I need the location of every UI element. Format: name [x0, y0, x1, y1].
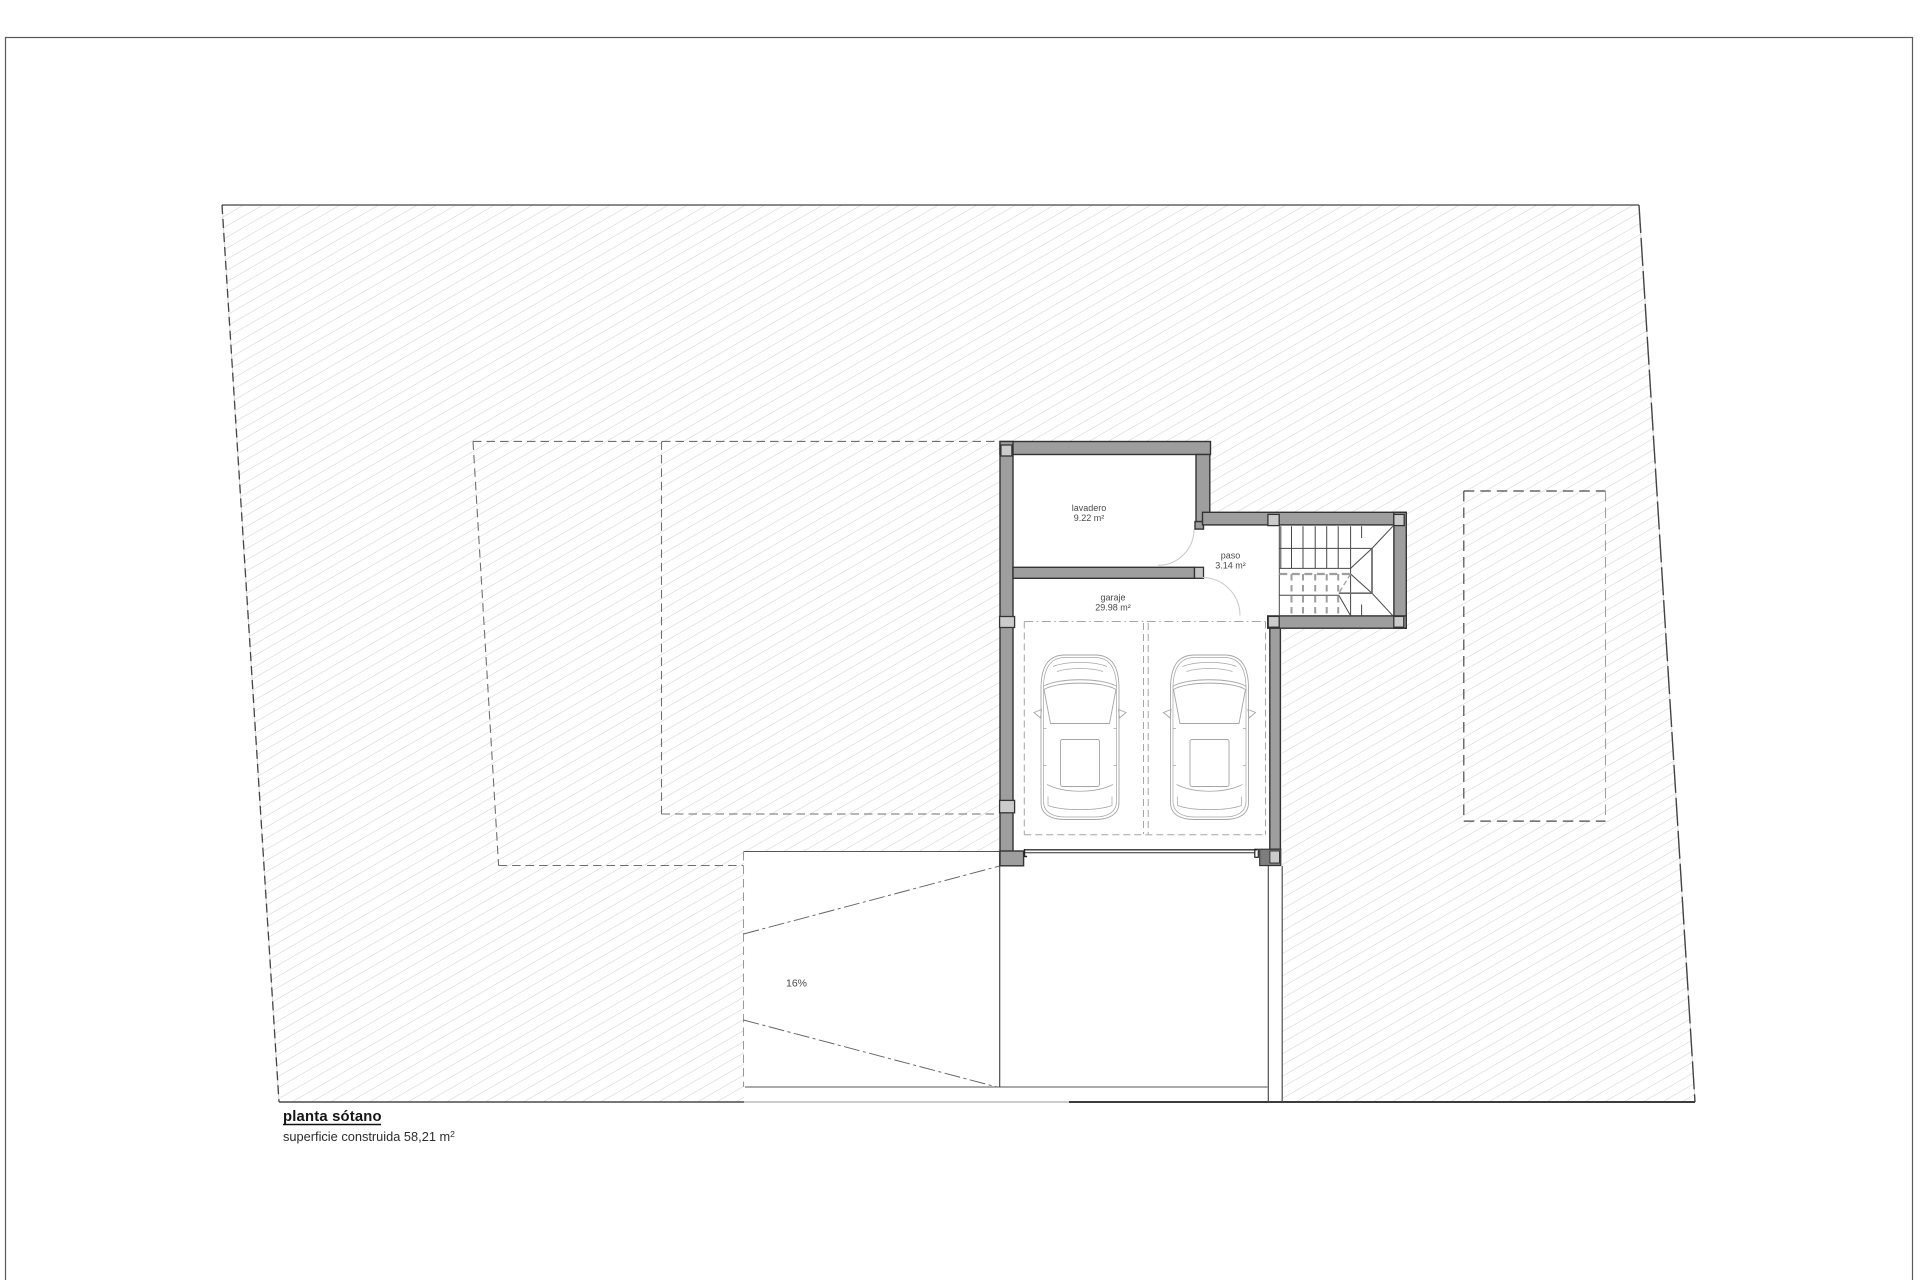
svg-text:superficie construida 58,21 m2: superficie construida 58,21 m2 [283, 1129, 455, 1144]
svg-text:garaje: garaje [1100, 593, 1125, 603]
svg-text:29.98 m²: 29.98 m² [1095, 603, 1131, 613]
svg-text:lavadero: lavadero [1072, 503, 1107, 513]
svg-text:3.14 m²: 3.14 m² [1215, 560, 1246, 570]
svg-text:paso: paso [1221, 551, 1241, 561]
svg-text:planta sótano: planta sótano [283, 1109, 382, 1125]
svg-text:9.22 m²: 9.22 m² [1074, 513, 1105, 523]
svg-text:16%: 16% [786, 978, 807, 990]
